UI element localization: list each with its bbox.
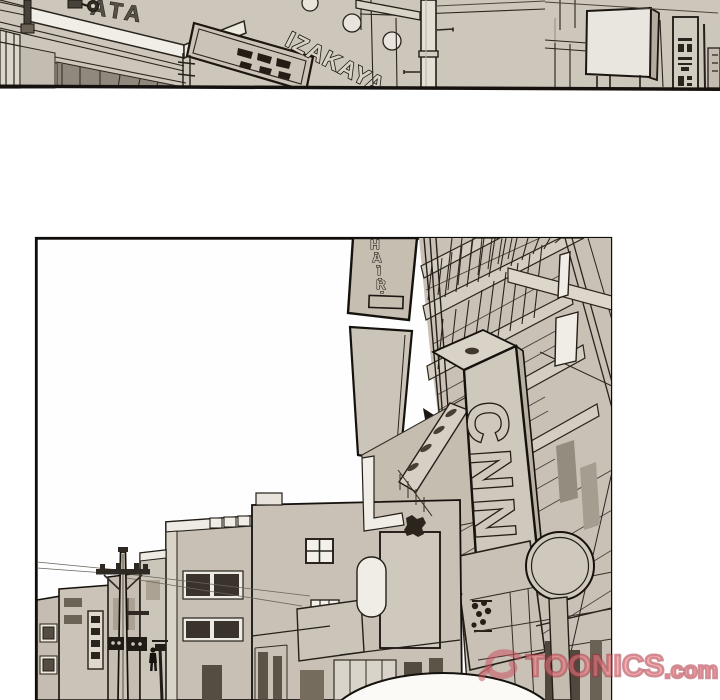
- svg-text:-: -: [376, 260, 380, 272]
- svg-text:-: -: [374, 247, 378, 259]
- svg-text:-: -: [378, 273, 382, 285]
- svg-text:CNN: CNN: [454, 399, 528, 548]
